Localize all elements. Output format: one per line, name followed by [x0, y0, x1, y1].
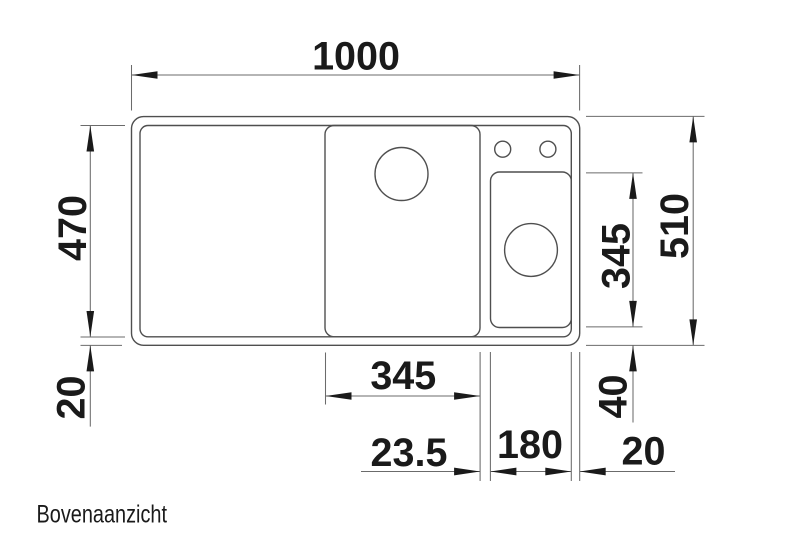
svg-text:470: 470: [51, 195, 95, 261]
svg-text:345: 345: [595, 223, 639, 289]
svg-text:1000: 1000: [312, 35, 400, 79]
svg-text:20: 20: [50, 376, 94, 420]
svg-text:345: 345: [370, 354, 436, 398]
svg-text:20: 20: [622, 430, 666, 474]
svg-text:40: 40: [592, 375, 636, 419]
svg-text:180: 180: [497, 423, 563, 467]
svg-text:Bovenaanzicht: Bovenaanzicht: [37, 500, 168, 528]
svg-text:23.5: 23.5: [371, 431, 448, 475]
svg-text:510: 510: [653, 193, 697, 259]
